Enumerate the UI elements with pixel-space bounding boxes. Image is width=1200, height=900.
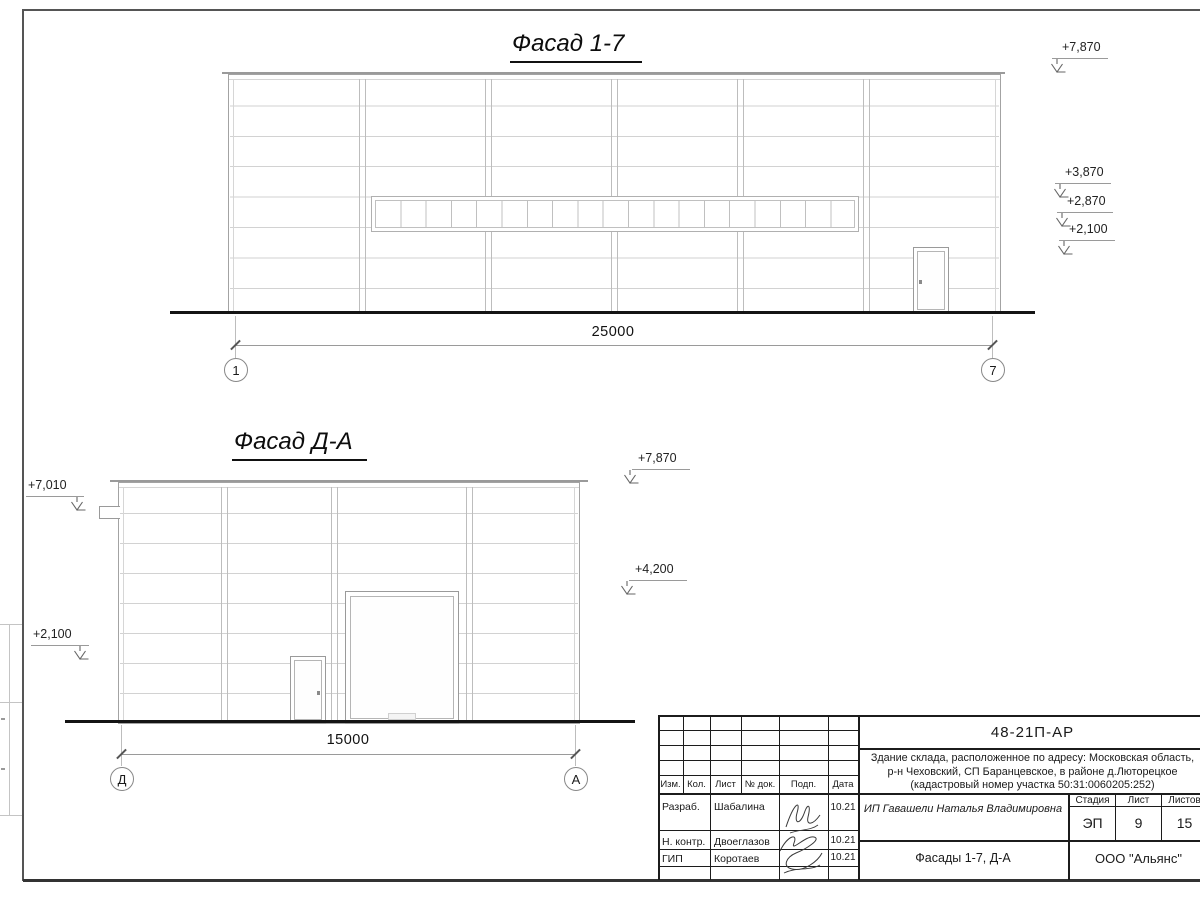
tb-sheet-label: Лист [1116, 794, 1161, 806]
ground-line [170, 311, 1035, 314]
door-handle [317, 691, 320, 695]
tb-stage-label: Стадия [1070, 794, 1115, 806]
tb-client: ИП Гавашели Наталья Владимировна [860, 801, 1066, 817]
tb-role: ГИП [662, 852, 709, 866]
tb-line [1068, 806, 1200, 807]
dimension-line [121, 754, 575, 755]
elevation-mark-label: +3,870 [1065, 165, 1104, 179]
dim-leader [235, 316, 236, 358]
wall-edge-line [123, 487, 124, 723]
tb-date: 10.21 [828, 800, 858, 814]
dim-leader [992, 316, 993, 358]
tb-line [658, 730, 858, 731]
elevation-arrow-icon [72, 646, 89, 661]
grid-bubble-1: 1 [224, 358, 248, 382]
tb-col-data: Дата [828, 777, 858, 791]
facade-1-7-elevation [228, 74, 1001, 314]
tb-border [658, 715, 660, 880]
tb-col-izm: Изм. [658, 777, 683, 791]
column-line [331, 487, 338, 723]
tb-project-line1: Здание склада, расположенное по адресу: … [858, 752, 1200, 766]
gate-leaf [350, 596, 454, 719]
wall-edge-line [995, 79, 996, 313]
grid-bubble-d: Д [110, 767, 134, 791]
tb-line [658, 830, 858, 831]
facade-1-7-door [913, 247, 949, 314]
tb-name: Шабалина [714, 800, 778, 814]
elevation-arrow-icon [619, 581, 636, 596]
tb-name: Коротаев [714, 852, 778, 866]
ribbon-window [371, 196, 859, 232]
roof-outlet [99, 506, 120, 519]
tb-line [710, 715, 711, 880]
elevation-shelf [632, 469, 690, 470]
tb-company: ООО "Альянс" [1070, 846, 1200, 870]
margin-line [0, 815, 22, 816]
dimension-text: 25000 [558, 324, 668, 340]
dimension-text: 15000 [293, 732, 403, 748]
margin-line [0, 702, 22, 703]
door-leaf [294, 660, 322, 720]
tb-col-podp: Подп. [779, 777, 828, 791]
elevation-shelf [629, 580, 687, 581]
tb-line [658, 775, 858, 776]
frame-top [23, 9, 1200, 11]
tb-col-list: Лист [710, 777, 741, 791]
dim-leader [121, 725, 122, 766]
margin-mark [1, 718, 5, 720]
dimension-line [235, 345, 992, 346]
tb-role: Разраб. [662, 800, 709, 814]
elevation-arrow-icon [622, 470, 639, 485]
elevation-mark-label: +7,870 [638, 451, 677, 465]
margin-mark [1, 768, 5, 770]
drawing-sheet: Фасад 1-7 25000 1 7 +7,870 +3,870 +2,870… [0, 0, 1200, 900]
tb-col-kol: Кол. [683, 777, 710, 791]
elevation-mark-label: +7,870 [1062, 40, 1101, 54]
elevation-arrow-icon [69, 497, 86, 512]
elevation-mark-label: +7,010 [28, 478, 67, 492]
tb-border [658, 715, 1200, 717]
elevation-mark-label: +2,100 [1069, 222, 1108, 236]
facade-da-title: Фасад Д-А [232, 428, 367, 461]
elevation-mark-label: +2,870 [1067, 194, 1106, 208]
column-line [359, 79, 366, 313]
tb-sheets-value: 15 [1162, 811, 1200, 835]
facade-da-gate [345, 591, 459, 724]
elevation-arrow-icon [1056, 241, 1073, 256]
tb-line [858, 748, 1200, 750]
tb-line [658, 760, 858, 761]
tb-role: Н. контр. [662, 835, 709, 849]
dim-leader [575, 725, 576, 766]
elevation-mark-label: +2,100 [33, 627, 72, 641]
tb-sheet-value: 9 [1116, 811, 1161, 835]
tb-doc-number: 48-21П-АР [858, 720, 1200, 744]
tb-line [658, 745, 858, 746]
tb-project-description: Здание склада, расположенное по адресу: … [858, 752, 1200, 793]
column-line [221, 487, 228, 723]
tb-stage-value: ЭП [1070, 811, 1115, 835]
gate-handle [388, 713, 416, 720]
door-handle [919, 280, 922, 284]
window-panes [375, 200, 855, 228]
parapet-inner-line [119, 487, 579, 488]
tb-sheets-label: Листов [1162, 794, 1200, 806]
facade-1-7-title: Фасад 1-7 [510, 30, 642, 63]
tb-date: 10.21 [828, 850, 858, 864]
margin-line [0, 624, 22, 625]
wall-edge-line [574, 487, 575, 723]
wall-edge-line [233, 79, 234, 313]
tb-project-line2: р-н Чеховский, СП Баранцевское, в районе… [858, 766, 1200, 780]
facade-da-door [290, 656, 326, 724]
frame-left [22, 9, 24, 881]
elevation-mark-label: +4,200 [635, 562, 674, 576]
tb-name: Двоеглазов [714, 835, 778, 849]
grid-bubble-7: 7 [981, 358, 1005, 382]
ground-line [65, 720, 635, 723]
tb-col-ndok: № док. [741, 777, 779, 791]
margin-line [9, 624, 10, 815]
grid-bubble-a: А [564, 767, 588, 791]
title-block: Изм. Кол. Лист № док. Подп. Дата Разраб.… [658, 715, 1200, 880]
column-line [863, 79, 870, 313]
tb-date: 10.21 [828, 833, 858, 847]
column-line [466, 487, 473, 723]
signature [776, 827, 828, 879]
elevation-arrow-icon [1049, 59, 1066, 74]
tb-line [658, 866, 858, 867]
tb-line [858, 840, 1200, 842]
tb-project-line3: (кадастровый номер участка 50:31:0060205… [858, 779, 1200, 793]
tb-sheet-title: Фасады 1-7, Д-А [860, 846, 1066, 870]
